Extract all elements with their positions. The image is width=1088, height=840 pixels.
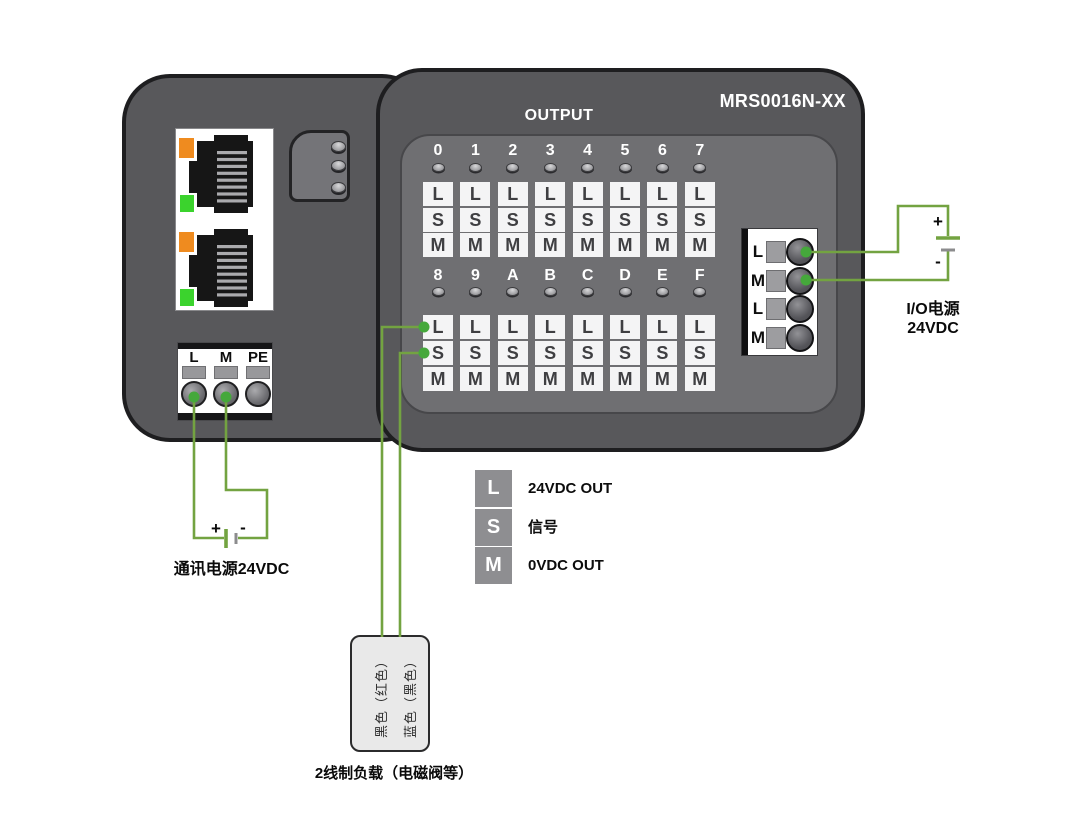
output-channel-number: C <box>573 268 603 284</box>
io-terminal-hole <box>786 238 814 266</box>
io-terminal-slot <box>766 270 786 292</box>
channel-led <box>619 163 632 172</box>
comm-terminal-label: PE <box>244 350 272 365</box>
legend-key-label: 信号 <box>528 509 558 546</box>
channel-terminal-cell: S <box>460 341 490 365</box>
io-power-label-line1: I/O电源 <box>872 300 994 319</box>
load-wire-color-label-left: 黑色（红色） <box>371 636 387 756</box>
status-led <box>331 141 346 152</box>
status-led <box>331 160 346 171</box>
comm-power-minus-sign: - <box>233 519 253 537</box>
output-channel-number: E <box>647 268 677 284</box>
channel-led <box>469 287 482 296</box>
channel-terminal-cell: L <box>460 182 490 206</box>
channel-terminal-cell: M <box>460 367 490 391</box>
terminal-block-left-bar <box>742 229 748 355</box>
channel-terminal-cell: M <box>647 233 677 257</box>
legend-key-box: S <box>475 509 512 546</box>
channel-terminal-cell: S <box>423 341 453 365</box>
channel-terminal-cell: S <box>685 208 715 232</box>
load-wire-color-label-right: 蓝色（黑色） <box>400 636 416 756</box>
io-power-minus-sign: - <box>928 253 948 271</box>
rj45-ports-graphic <box>176 129 275 312</box>
channel-terminal-cell: M <box>423 367 453 391</box>
output-channel-number: 9 <box>460 268 490 284</box>
io-power-label: I/O电源 24VDC <box>872 300 994 338</box>
load-caption: 2线制负载（电磁阀等） <box>294 762 494 783</box>
comm-terminal-hole <box>245 381 271 407</box>
io-terminal-slot <box>766 241 786 263</box>
module-model-label: MRS0016N-XX <box>618 91 846 112</box>
channel-terminal-cell: S <box>573 341 603 365</box>
channel-terminal-cell: S <box>498 208 528 232</box>
port1-green-led <box>180 195 194 212</box>
channel-terminal-cell: S <box>535 341 565 365</box>
channel-terminal-cell: L <box>610 182 640 206</box>
legend-key-box: L <box>475 470 512 507</box>
io-power-label-line2: 24VDC <box>872 319 994 338</box>
channel-terminal-cell: L <box>498 182 528 206</box>
channel-terminal-cell: L <box>535 315 565 339</box>
channel-terminal-cell: S <box>423 208 453 232</box>
comm-terminal-hole <box>213 381 239 407</box>
channel-terminal-cell: M <box>423 233 453 257</box>
channel-led <box>432 163 445 172</box>
comm-power-label: 通讯电源24VDC <box>149 555 314 579</box>
output-section-label: OUTPUT <box>499 107 619 125</box>
channel-terminal-cell: S <box>535 208 565 232</box>
channel-terminal-cell: S <box>460 208 490 232</box>
channel-terminal-cell: M <box>573 233 603 257</box>
io-terminal-hole <box>786 267 814 295</box>
legend-key-label: 0VDC OUT <box>528 547 604 584</box>
channel-terminal-cell: S <box>610 341 640 365</box>
io-terminal-label: M <box>749 272 767 290</box>
legend-key-box: M <box>475 547 512 584</box>
channel-terminal-cell: M <box>647 367 677 391</box>
io-terminal-slot <box>766 298 786 320</box>
output-channel-number: 4 <box>573 143 603 159</box>
rj45-port-2 <box>179 229 253 307</box>
port2-orange-led <box>179 232 194 252</box>
channel-terminal-cell: L <box>498 315 528 339</box>
comm-power-plus-sign: + <box>206 520 226 538</box>
status-led <box>331 182 346 193</box>
io-terminal-label: M <box>749 329 767 347</box>
output-channel-number: A <box>498 268 528 284</box>
channel-terminal-cell: M <box>610 367 640 391</box>
channel-terminal-cell: L <box>535 182 565 206</box>
channel-terminal-cell: M <box>685 233 715 257</box>
channel-terminal-cell: S <box>610 208 640 232</box>
channel-terminal-cell: M <box>685 367 715 391</box>
terminal-block-bottom-band <box>178 413 272 420</box>
channel-led <box>469 163 482 172</box>
channel-led <box>619 287 632 296</box>
output-channel-number: D <box>610 268 640 284</box>
channel-terminal-cell: M <box>498 367 528 391</box>
channel-terminal-cell: M <box>573 367 603 391</box>
channel-terminal-cell: S <box>685 341 715 365</box>
comm-terminal-slot <box>182 366 206 379</box>
channel-terminal-cell: S <box>647 341 677 365</box>
channel-terminal-cell: M <box>498 233 528 257</box>
ethernet-port-panel <box>175 128 274 311</box>
io-terminal-slot <box>766 327 786 349</box>
comm-terminal-slot <box>246 366 270 379</box>
channel-terminal-cell: L <box>610 315 640 339</box>
channel-terminal-cell: L <box>685 315 715 339</box>
io-power-plus-sign: + <box>928 213 948 231</box>
channel-led <box>544 163 557 172</box>
channel-led <box>581 163 594 172</box>
io-terminal-hole <box>786 324 814 352</box>
channel-terminal-cell: S <box>498 341 528 365</box>
channel-terminal-cell: M <box>460 233 490 257</box>
legend-key-label: 24VDC OUT <box>528 470 612 507</box>
channel-terminal-cell: S <box>647 208 677 232</box>
output-channel-number: 5 <box>610 143 640 159</box>
rj45-port-1 <box>179 135 253 213</box>
output-channel-number: B <box>535 268 565 284</box>
channel-terminal-cell: M <box>610 233 640 257</box>
channel-terminal-cell: S <box>573 208 603 232</box>
output-channel-number: F <box>685 268 715 284</box>
output-channel-number: 6 <box>647 143 677 159</box>
comm-terminal-label: L <box>180 350 208 365</box>
channel-terminal-cell: L <box>573 182 603 206</box>
channel-terminal-cell: L <box>423 182 453 206</box>
output-channel-number: 1 <box>460 143 490 159</box>
channel-led <box>656 287 669 296</box>
wiring-diagram: MRS0016N-XX OUTPUT <box>0 0 1088 840</box>
channel-terminal-cell: L <box>647 182 677 206</box>
io-terminal-hole <box>786 295 814 323</box>
channel-led <box>581 287 594 296</box>
comm-terminal-label: M <box>212 350 240 365</box>
channel-led <box>656 163 669 172</box>
two-wire-load-box <box>350 635 430 752</box>
channel-terminal-cell: L <box>573 315 603 339</box>
output-channel-number: 8 <box>423 268 453 284</box>
output-channel-number: 3 <box>535 143 565 159</box>
output-channel-number: 0 <box>423 143 453 159</box>
channel-terminal-cell: L <box>647 315 677 339</box>
port1-orange-led <box>179 138 194 158</box>
output-channel-number: 7 <box>685 143 715 159</box>
channel-led <box>544 287 557 296</box>
channel-terminal-cell: L <box>685 182 715 206</box>
channel-terminal-cell: L <box>423 315 453 339</box>
io-terminal-label: L <box>749 243 767 261</box>
io-terminal-label: L <box>749 300 767 318</box>
comm-terminal-slot <box>214 366 238 379</box>
channel-terminal-cell: M <box>535 233 565 257</box>
channel-terminal-cell: L <box>460 315 490 339</box>
channel-terminal-cell: M <box>535 367 565 391</box>
comm-terminal-hole <box>181 381 207 407</box>
output-channel-number: 2 <box>498 143 528 159</box>
channel-led <box>432 287 445 296</box>
port2-green-led <box>180 289 194 306</box>
